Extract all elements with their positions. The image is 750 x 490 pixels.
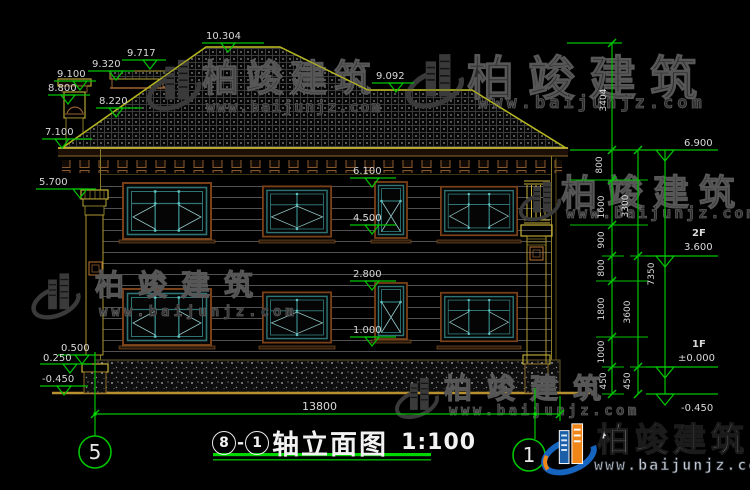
axis-bubble-left: 5 xyxy=(79,436,111,468)
vdim-label: 800 xyxy=(594,143,606,187)
level-label: 6.100 xyxy=(353,166,382,177)
title-scale: 1:100 xyxy=(401,430,476,455)
label-layer: 10.304 9.717 9.320 9.100 8.800 8.220 7.1… xyxy=(0,0,750,490)
axis-bubble-right: 1 xyxy=(513,439,545,471)
level-label: 0.250 xyxy=(43,353,72,364)
title-axis-right: 1 xyxy=(245,431,269,455)
vdim-label: 800 xyxy=(596,246,608,290)
floor-label: 2F xyxy=(692,228,706,239)
floor-label: 1F xyxy=(692,339,706,350)
vdim-label: 450 xyxy=(622,359,634,403)
level-label: 1.000 xyxy=(353,325,382,336)
vdim-label: 7350 xyxy=(646,252,658,296)
level-label: 7.100 xyxy=(45,127,74,138)
title-text: 轴立面图 xyxy=(272,423,388,462)
level-label: 9.717 xyxy=(127,48,156,59)
vdim-label: 3404 xyxy=(598,78,610,122)
title-axis-left: 8 xyxy=(212,431,236,455)
level-label: 9.100 xyxy=(57,69,86,80)
title-dash: - xyxy=(237,433,244,453)
cad-elevation-screenshot: 柏竣建筑 www.baijunjz.com 柏竣建筑 www.baijunjz.… xyxy=(0,0,750,490)
vdim-label: 450 xyxy=(598,359,610,403)
level-label: -0.450 xyxy=(42,374,74,385)
vdim-label: 1800 xyxy=(596,287,608,331)
level-label: 9.092 xyxy=(376,71,405,82)
level-label: 3.600 xyxy=(684,242,713,253)
level-label: 4.500 xyxy=(353,213,382,224)
vdim-label: 3300 xyxy=(620,184,632,228)
drawing-title: 8 - 1 轴立面图 1:100 xyxy=(212,423,476,462)
level-label: -0.450 xyxy=(681,403,713,414)
hdim-label: 13800 xyxy=(302,401,337,412)
level-label: 8.800 xyxy=(48,83,77,94)
level-label: 2.800 xyxy=(353,269,382,280)
level-label: 10.304 xyxy=(206,31,241,42)
vdim-label: 3600 xyxy=(622,290,634,334)
level-label: 8.220 xyxy=(99,96,128,107)
level-label: 5.700 xyxy=(39,177,68,188)
level-label: ±0.000 xyxy=(678,353,715,364)
level-label: 9.320 xyxy=(92,59,121,70)
level-label: 6.900 xyxy=(684,138,713,149)
